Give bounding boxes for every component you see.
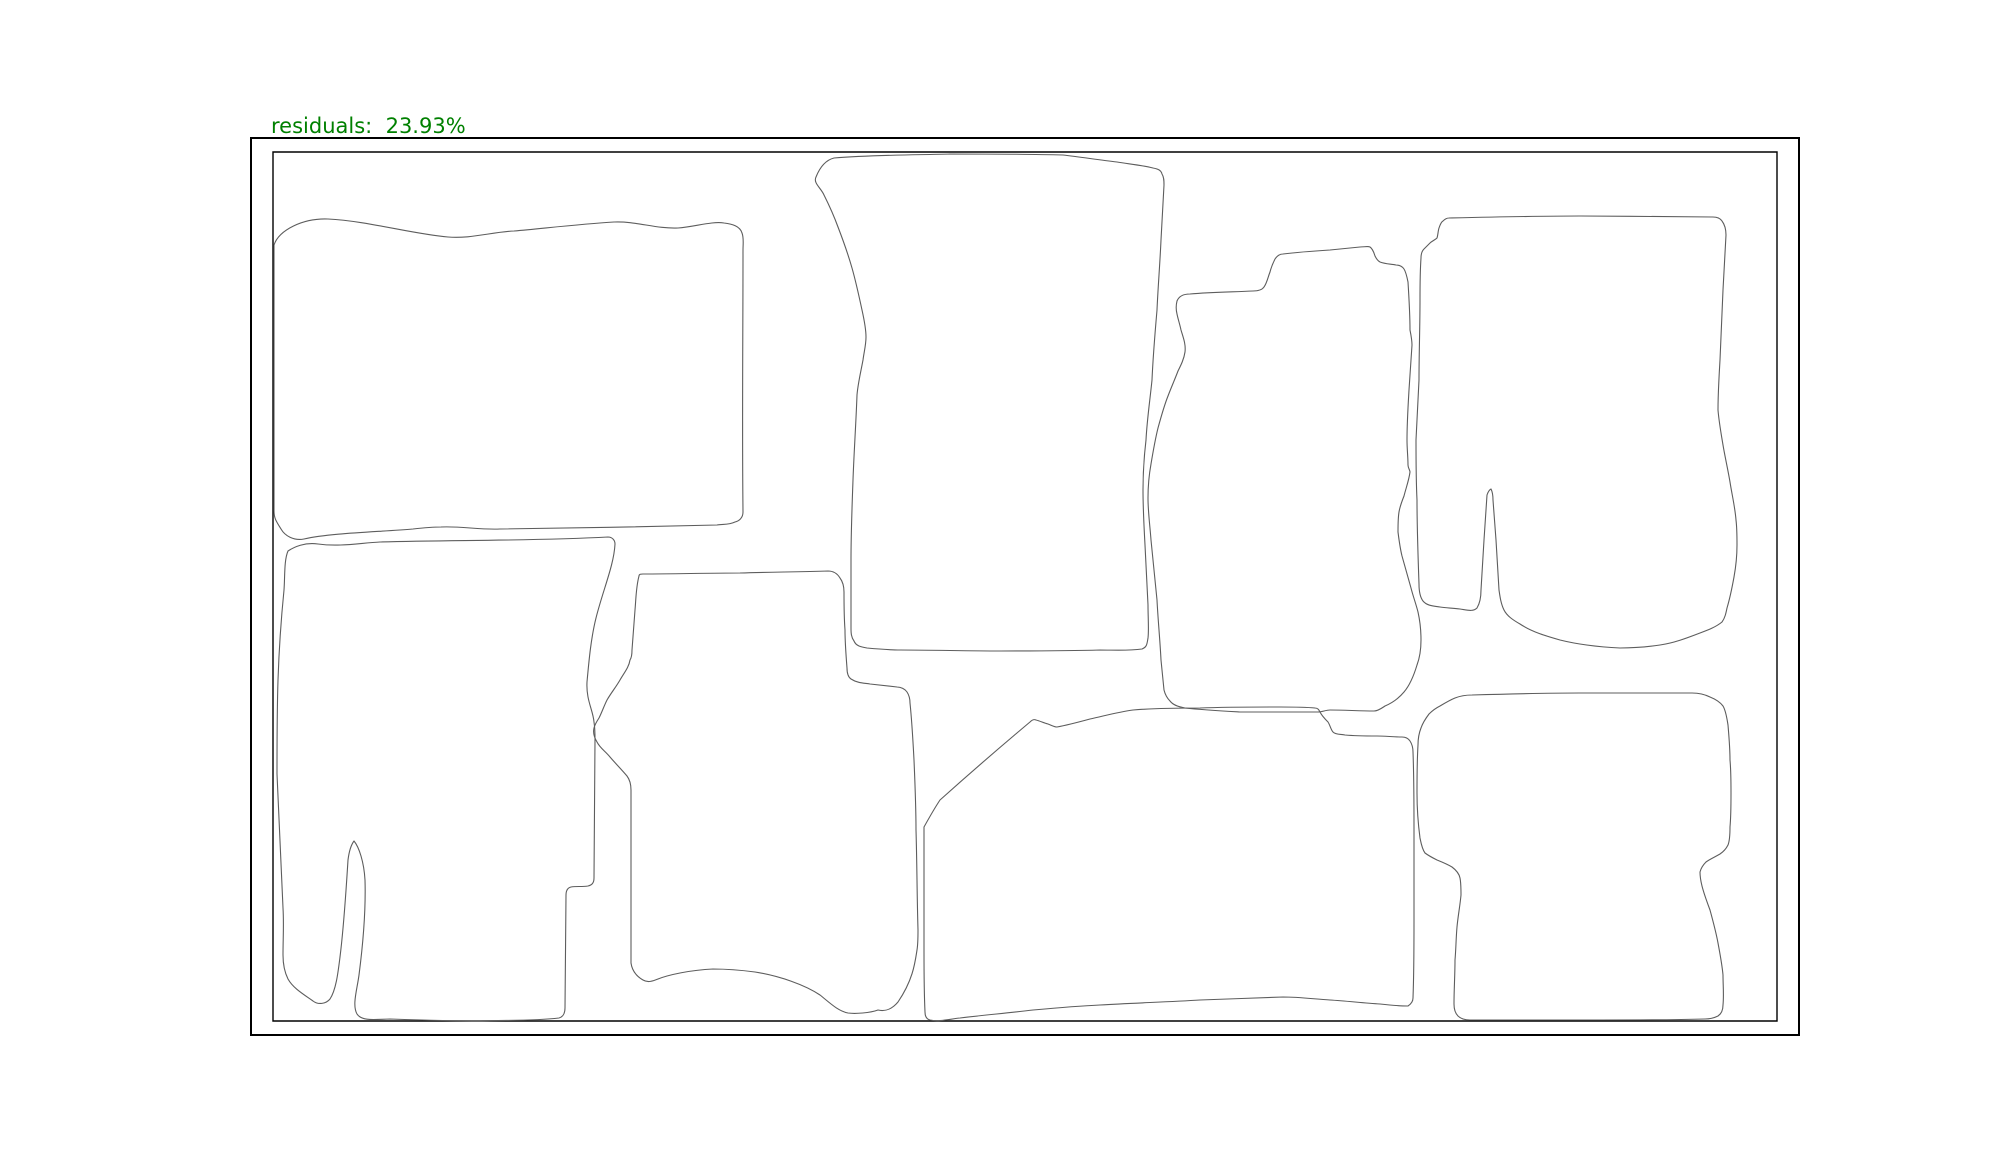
part-5-outline — [1148, 247, 1421, 712]
bin-inner-border — [273, 152, 1777, 1021]
bin-borders — [251, 138, 1799, 1035]
part-1-outline — [274, 219, 743, 540]
nesting-canvas — [0, 0, 2000, 1161]
bin-outer-border — [251, 138, 1799, 1035]
part-outlines — [274, 154, 1737, 1021]
part-7-outline — [924, 707, 1414, 1021]
part-2-outline — [277, 537, 615, 1021]
nesting-figure: residuals: 23.93% — [0, 0, 2000, 1161]
part-3-outline — [815, 154, 1164, 651]
part-6-outline — [1416, 216, 1737, 648]
part-4-outline — [594, 571, 918, 1013]
part-8-outline — [1417, 693, 1731, 1020]
